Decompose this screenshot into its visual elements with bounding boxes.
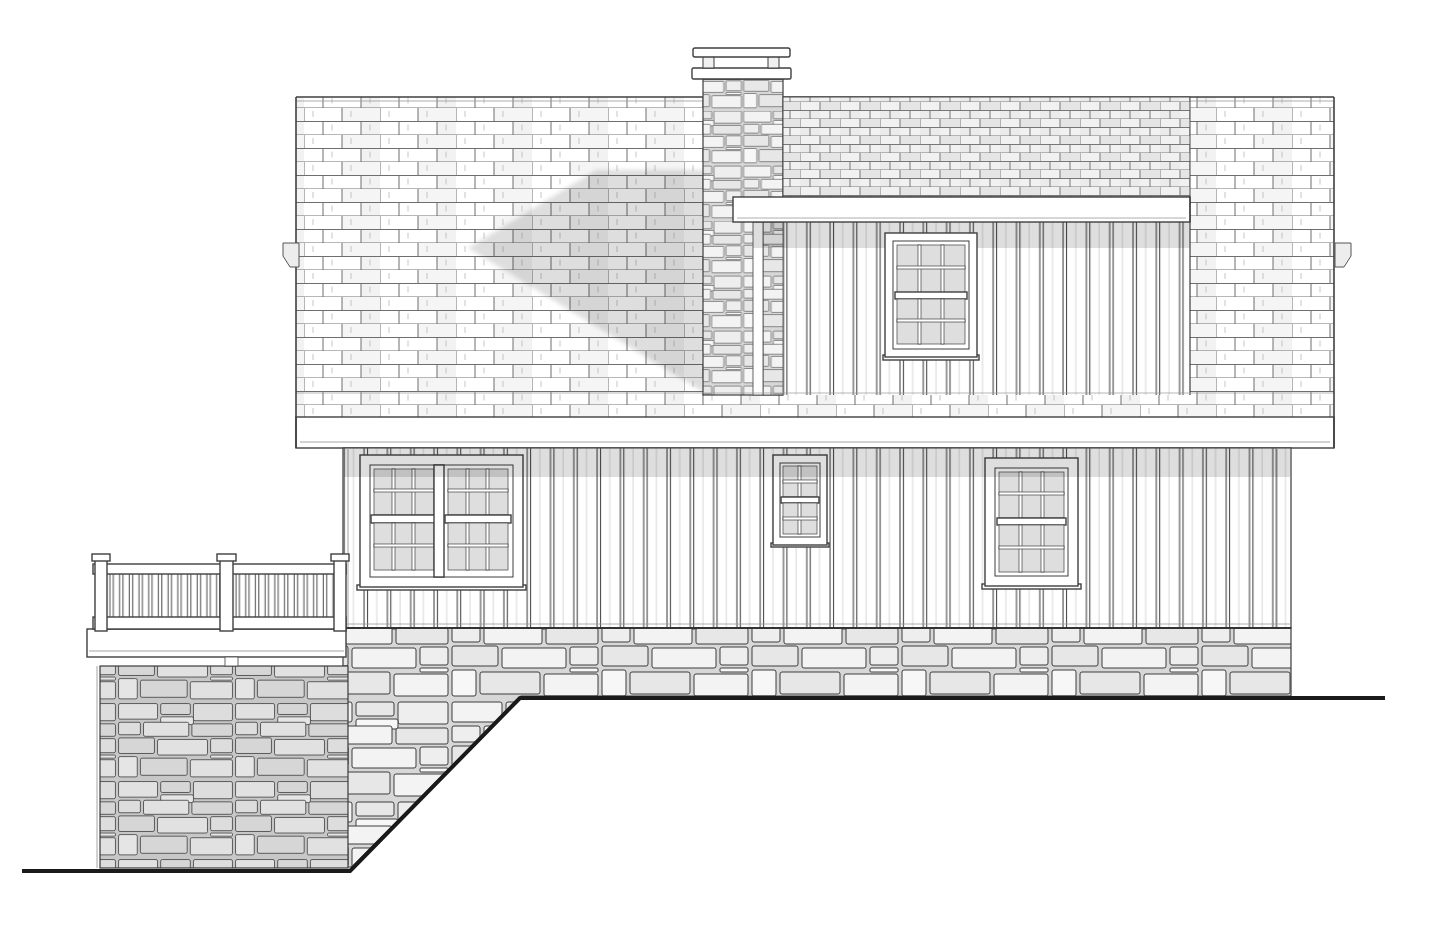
- meeting-rail: [445, 515, 511, 523]
- muntin: [999, 492, 1064, 495]
- muntin: [448, 544, 508, 547]
- right-window: [982, 458, 1081, 589]
- railing-post-left: [95, 559, 107, 631]
- deck-joist-block: [225, 657, 238, 666]
- gutter-outlet-right: [1335, 243, 1351, 267]
- muntin: [374, 544, 434, 547]
- deck-pier-shading: [100, 666, 348, 868]
- deck-rim-band: [87, 629, 346, 657]
- muntin: [374, 489, 434, 492]
- chimney-cap-top-slab: [693, 48, 790, 57]
- gutter-outlet-left: [283, 243, 299, 267]
- deck-railing: [92, 554, 349, 631]
- foundation: [343, 628, 1291, 867]
- muntin: [783, 517, 817, 520]
- center-mullion: [434, 465, 444, 577]
- upper-dormer: [733, 97, 1190, 395]
- meeting-rail: [371, 515, 437, 523]
- railing-post-cap-middle: [217, 554, 236, 561]
- muntin: [897, 266, 965, 269]
- deck: [87, 554, 349, 868]
- house-side-elevation: [0, 0, 1440, 936]
- railing-post-cap-left: [92, 554, 110, 561]
- elevation-sheet: [0, 0, 1440, 936]
- dormer-roof: [783, 97, 1190, 197]
- railing-post-right: [334, 559, 346, 631]
- dormer-window-meeting-rail: [895, 292, 967, 299]
- railing-post-cap-right: [331, 554, 349, 561]
- meeting-rail: [781, 497, 819, 503]
- muntin: [783, 480, 817, 483]
- foundation-stone-veneer: [343, 628, 1291, 867]
- muntin: [448, 489, 508, 492]
- chimney-cap-lower-slab: [692, 68, 791, 79]
- dormer-window: [883, 233, 979, 360]
- chimney-cap-support-right: [768, 56, 779, 68]
- railing-post-middle: [220, 559, 233, 631]
- meeting-rail: [997, 518, 1066, 525]
- main-roof-fascia: [296, 417, 1334, 448]
- muntin: [897, 319, 965, 322]
- muntin: [999, 546, 1064, 549]
- main-level-wall: [343, 448, 1291, 628]
- chimney-cap-support-left: [703, 56, 714, 68]
- main-eave-shadow: [344, 449, 1290, 477]
